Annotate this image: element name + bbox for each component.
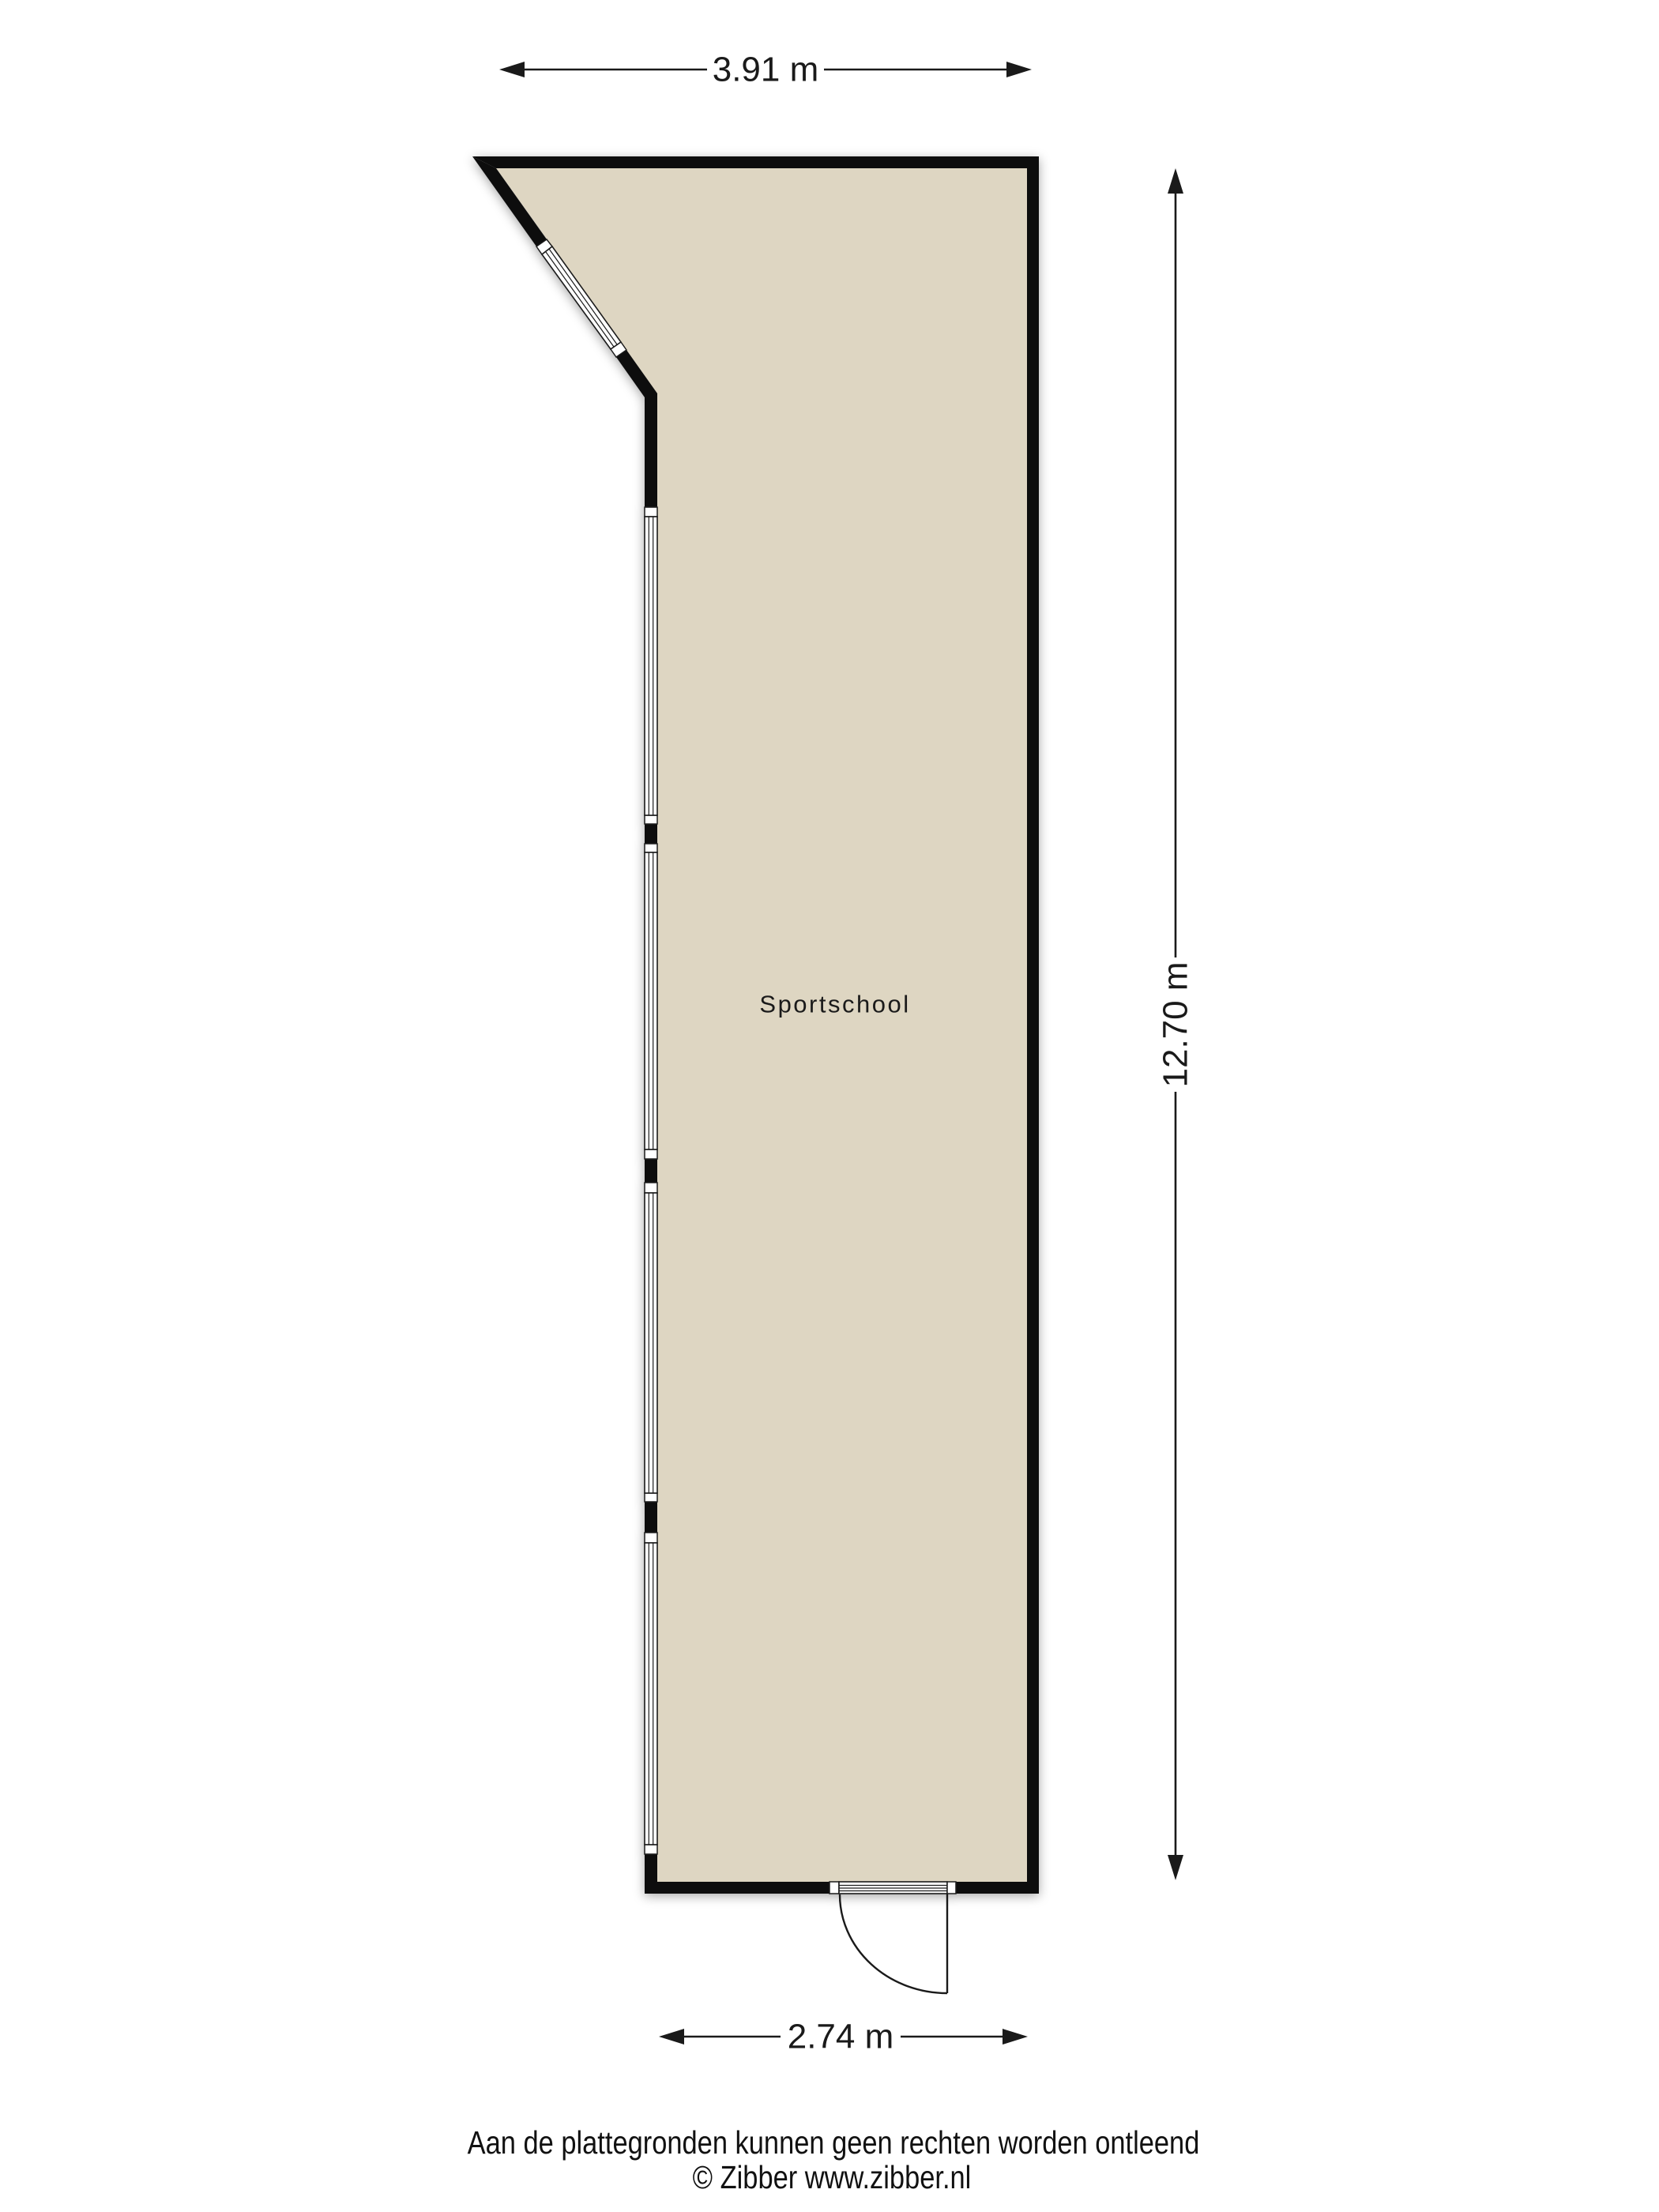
wall-pier: [645, 824, 657, 844]
dimension-top-label: 3.91 m: [713, 51, 819, 89]
entrance-door-frame: [829, 1882, 956, 1894]
window-sill: [645, 1183, 657, 1193]
windows: [536, 239, 657, 1854]
room-sportschool: [472, 156, 1039, 1894]
window-segment: [645, 1193, 657, 1493]
window-sill: [645, 844, 657, 852]
wall-pier: [645, 1502, 657, 1533]
dimension-bottom-label: 2.74 m: [788, 2018, 894, 2056]
arrow-left-icon: [659, 2029, 684, 2045]
arrow-right-icon: [1003, 2029, 1028, 2045]
room-floor: [496, 168, 1027, 1882]
window-sill: [645, 507, 657, 517]
footer-disclaimer: Aan de plattegronden kunnen geen rechten…: [468, 2125, 1200, 2161]
floorplan-page: 3.91 m 12.70 m 2.74 m Sportschool Aan de…: [0, 0, 1659, 2212]
wall-bottom-right: [956, 1882, 1039, 1894]
window-sill: [645, 1533, 657, 1543]
window-sill: [645, 1845, 657, 1854]
wall-bottom-left: [645, 1882, 829, 1894]
dimension-top: 3.91 m: [499, 51, 1032, 89]
window-segment: [645, 1543, 657, 1845]
room-label: Sportschool: [759, 991, 910, 1018]
footer-copyright: © Zibber www.zibber.nl: [693, 2160, 972, 2195]
dimension-bottom: 2.74 m: [659, 2018, 1028, 2056]
wall-pier: [645, 1159, 657, 1183]
arrow-up-icon: [1168, 168, 1183, 194]
wall-right: [1027, 156, 1039, 1894]
wall-left-upper: [645, 474, 657, 510]
dimension-right-label: 12.70 m: [1157, 962, 1195, 1088]
arrow-left-icon: [499, 62, 525, 77]
door-swing-arc: [840, 1894, 947, 1993]
window-sill: [645, 1149, 657, 1159]
window-sill: [645, 1493, 657, 1502]
window-segment: [645, 517, 657, 815]
window-sill: [645, 815, 657, 824]
floorplan-canvas: 3.91 m 12.70 m 2.74 m Sportschool Aan de…: [0, 0, 1659, 2212]
door-jamb: [947, 1882, 956, 1894]
wall-corner-bottom-left: [645, 1854, 657, 1894]
door-jamb: [829, 1882, 839, 1894]
entrance-door-swing: [840, 1894, 947, 1993]
arrow-down-icon: [1168, 1855, 1183, 1880]
dimension-right: 12.70 m: [1157, 168, 1195, 1880]
wall-top: [472, 156, 1039, 168]
footer: Aan de plattegronden kunnen geen rechten…: [468, 2125, 1200, 2195]
window-segment: [645, 852, 657, 1149]
arrow-right-icon: [1006, 62, 1032, 77]
